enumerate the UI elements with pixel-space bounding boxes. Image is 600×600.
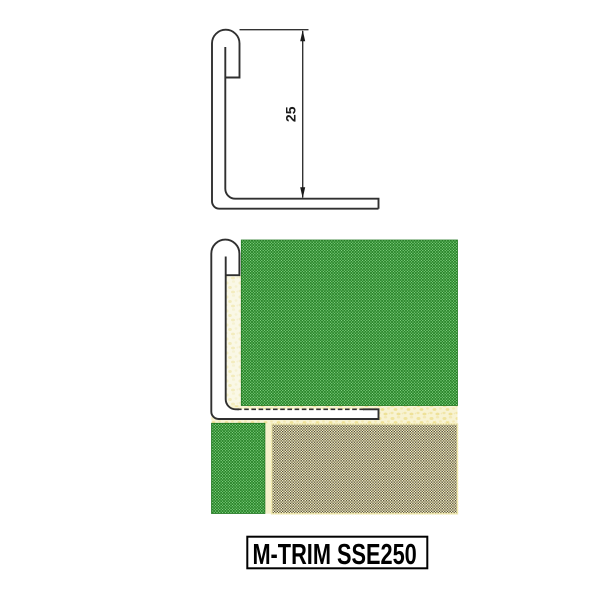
svg-text:25: 25 <box>283 106 299 122</box>
svg-text:M-TRIM SSE250: M-TRIM SSE250 <box>252 539 416 571</box>
